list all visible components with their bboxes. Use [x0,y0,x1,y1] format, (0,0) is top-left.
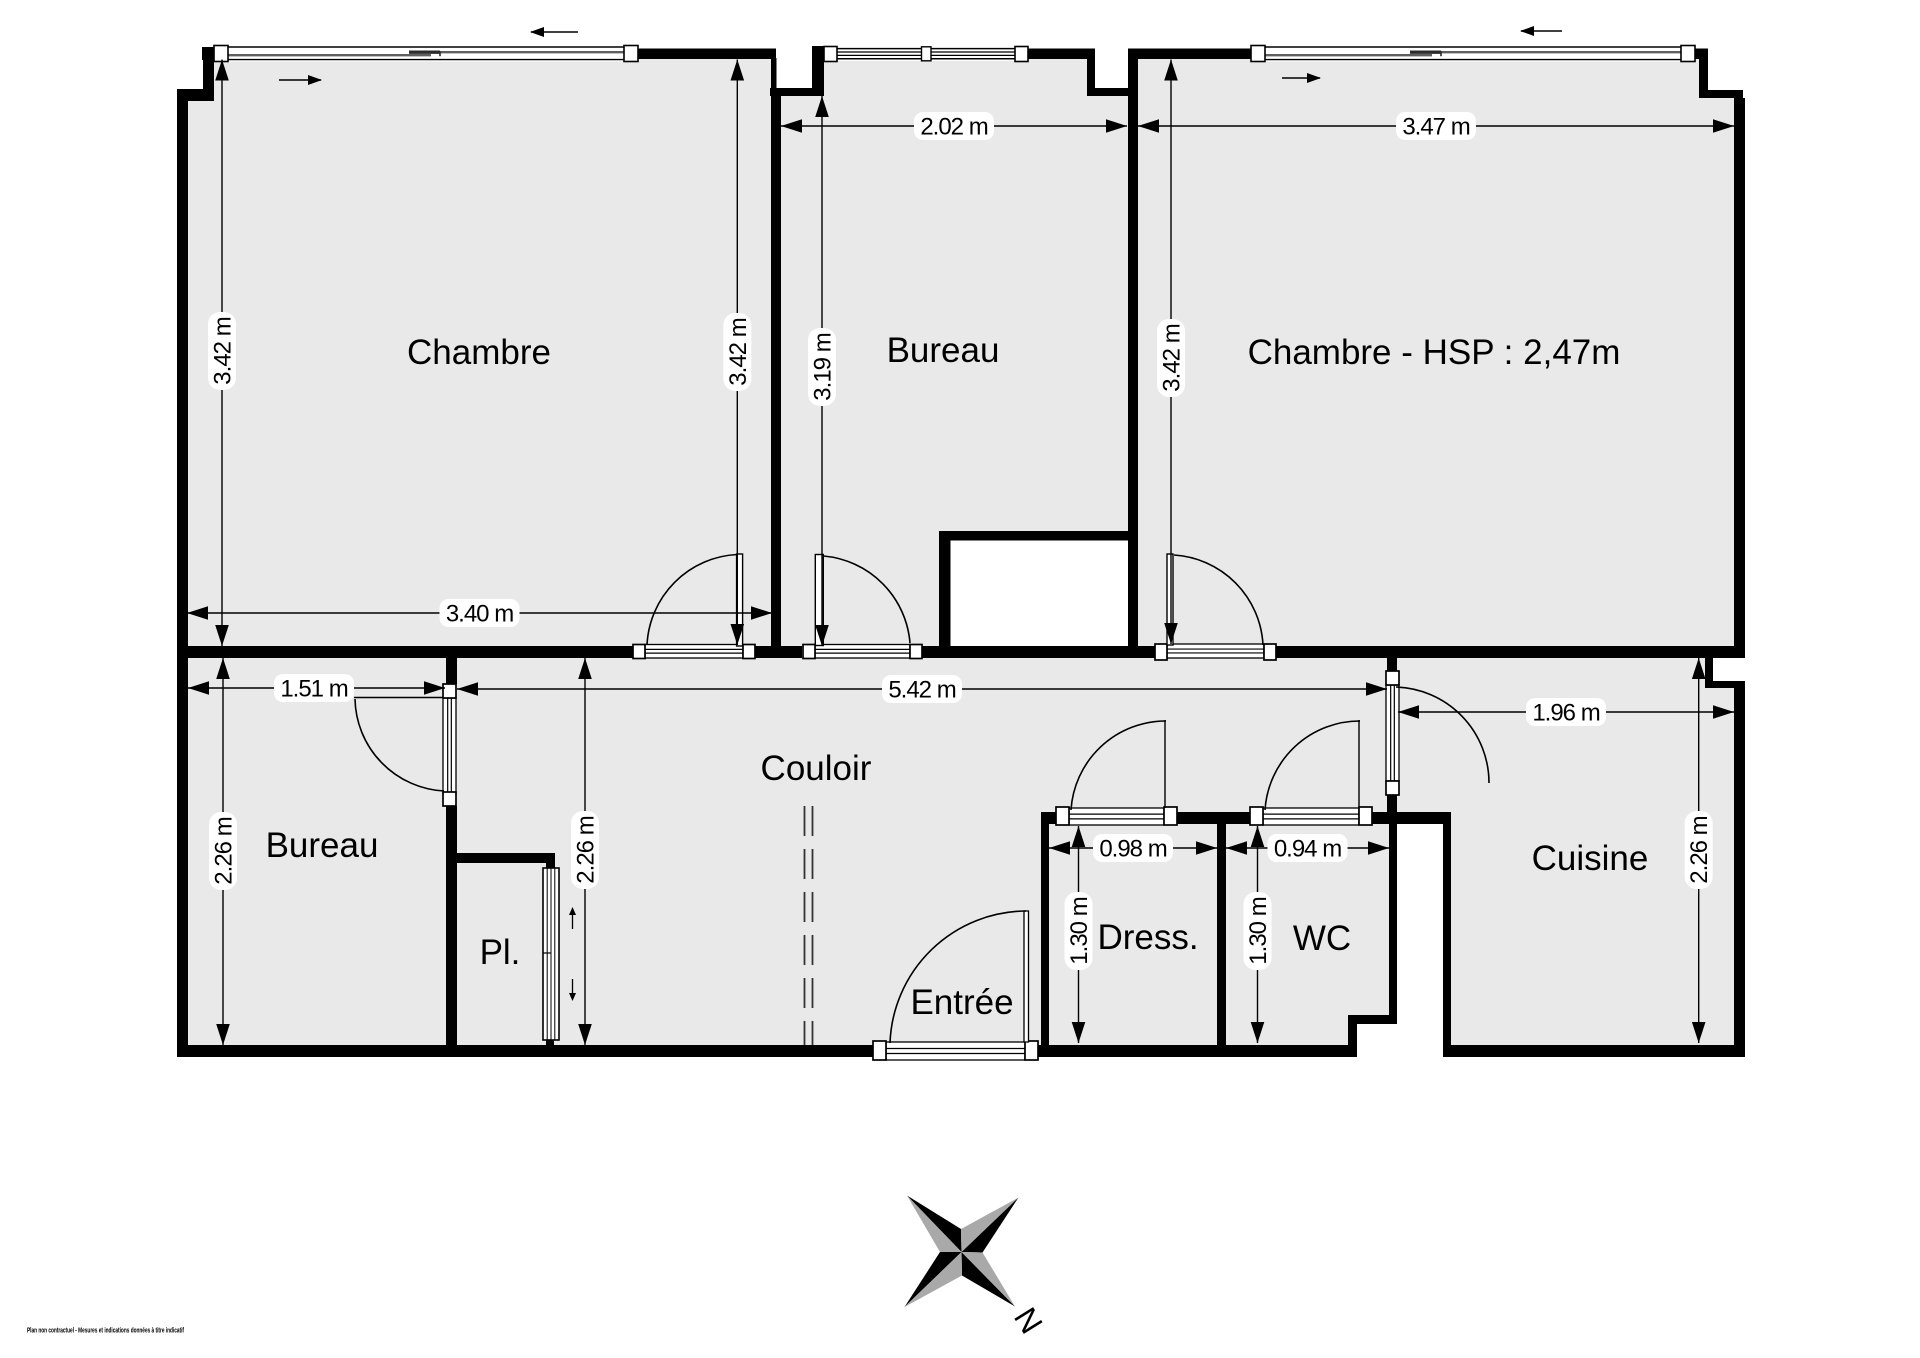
svg-text:1.51 m: 1.51 m [280,676,347,703]
svg-text:1.96 m: 1.96 m [1532,700,1599,727]
svg-text:2.26 m: 2.26 m [1686,816,1713,883]
svg-text:3.42 m: 3.42 m [210,317,237,384]
svg-text:Chambre - HSP : 2,47m: Chambre - HSP : 2,47m [1248,333,1621,372]
svg-text:Bureau: Bureau [266,826,379,865]
svg-text:3.42 m: 3.42 m [725,318,752,385]
svg-text:0.94 m: 0.94 m [1274,836,1341,863]
svg-text:1.30 m: 1.30 m [1066,897,1093,964]
svg-text:3.47 m: 3.47 m [1402,114,1469,141]
svg-text:2.02 m: 2.02 m [920,114,987,141]
svg-text:Couloir: Couloir [761,749,872,788]
svg-text:Cuisine: Cuisine [1532,839,1649,878]
svg-text:1.30 m: 1.30 m [1245,897,1272,964]
svg-text:Dress.: Dress. [1097,918,1198,957]
svg-text:0.98 m: 0.98 m [1099,836,1166,863]
svg-text:Bureau: Bureau [887,331,1000,370]
svg-text:3.42 m: 3.42 m [1159,324,1186,391]
svg-text:Entrée: Entrée [910,983,1013,1022]
svg-text:Plan non contractuel - Mesures: Plan non contractuel - Mesures et indica… [27,1326,184,1335]
svg-text:2.26 m: 2.26 m [573,816,600,883]
svg-text:2.26 m: 2.26 m [211,817,238,884]
svg-text:5.42 m: 5.42 m [888,677,955,704]
svg-text:3.19 m: 3.19 m [810,333,837,400]
svg-text:3.40 m: 3.40 m [446,601,513,628]
svg-text:WC: WC [1293,919,1351,958]
svg-text:Pl.: Pl. [480,933,521,972]
svg-text:Chambre: Chambre [407,333,551,372]
